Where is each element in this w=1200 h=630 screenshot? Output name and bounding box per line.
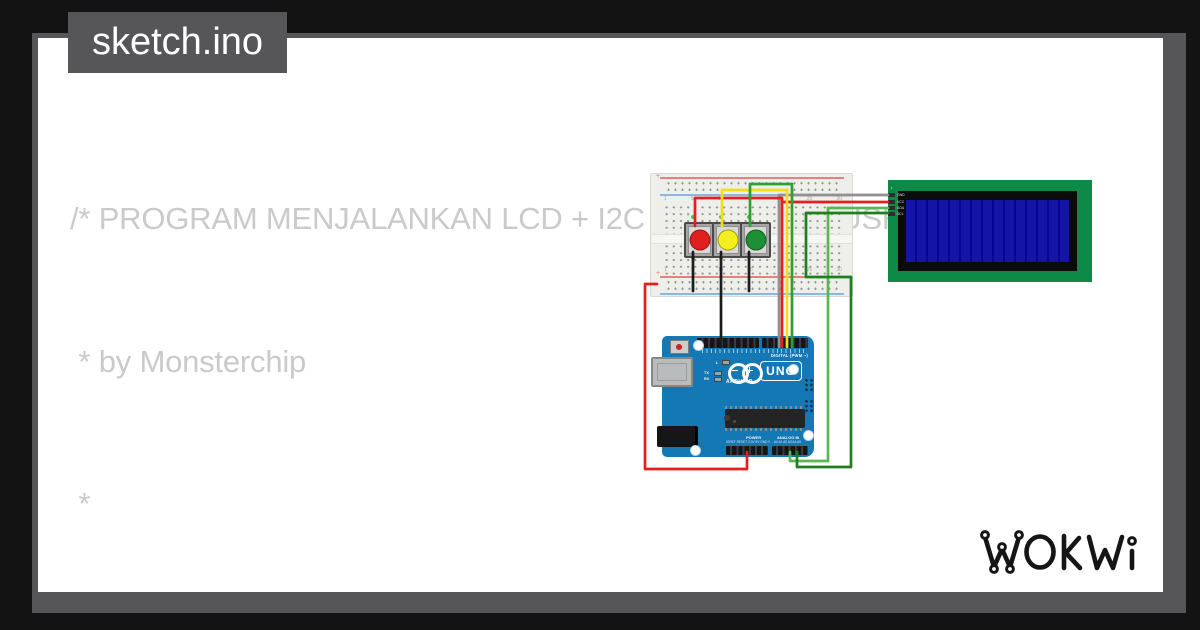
yellow-button-cap (717, 230, 738, 251)
logo-plus (749, 367, 751, 373)
code-line: * (70, 480, 1033, 528)
icsp-header (804, 399, 814, 413)
social-preview-card: sketch.ino /* PROGRAM MENJALANKAN LCD + … (0, 0, 1200, 630)
scl-pad (888, 212, 895, 216)
vcc-pin-label: VCC (897, 200, 904, 204)
code-line: * by Monsterchip (70, 338, 1033, 386)
atmega-chip (725, 409, 805, 428)
digital-header-right (762, 338, 808, 348)
rx-label: RX (704, 377, 709, 381)
sda-pin-label: SDA (897, 206, 904, 210)
power-header (726, 446, 768, 455)
contact-dot (691, 215, 695, 219)
lcd-i2c-module: 1 GND VCC SDA SCL (888, 180, 1092, 282)
pushbutton-red (684, 222, 715, 258)
green-button-cap (745, 230, 766, 251)
usb-connector (651, 357, 693, 387)
logo-i-dot (1129, 538, 1136, 545)
rail-holes (665, 279, 841, 292)
mounting-hole (690, 445, 701, 456)
tx-led (714, 371, 722, 376)
scl-pin-label: SCL (897, 212, 904, 216)
gnd-pin-label: GND (897, 193, 905, 197)
pin1-label: 1 (891, 186, 893, 190)
column-numbers: 151015202530 (664, 196, 842, 202)
vcc-pad (888, 200, 895, 204)
led-l (722, 360, 730, 365)
uno-model-label: UNO (760, 361, 802, 381)
logo-letter-k (1064, 536, 1080, 568)
rail-line-blue (660, 293, 844, 295)
rail-holes (665, 180, 841, 193)
chip-legs (725, 428, 805, 431)
lcd-screen (906, 200, 1069, 262)
red-button-cap (689, 230, 710, 251)
logo-minus (732, 370, 738, 372)
tx-label: TX (704, 371, 709, 375)
reset-button (670, 340, 689, 354)
logo-node (991, 566, 998, 573)
rail-line-red (660, 177, 844, 179)
sketch-filename: sketch.ino (92, 21, 263, 63)
power-jack (657, 426, 698, 447)
logo-node (999, 544, 1006, 551)
icsp-header (804, 378, 814, 392)
sda-pad (888, 206, 895, 210)
gnd-pad (888, 193, 895, 197)
logo-letter-w2 (1089, 537, 1122, 568)
mounting-hole (693, 340, 704, 351)
logo-node (1016, 532, 1023, 539)
wokwi-logo (976, 524, 1148, 576)
column-numbers: 151015202530 (664, 267, 842, 273)
code-line: * credit: (70, 623, 1033, 630)
pushbutton-yellow (712, 222, 743, 258)
sketch-filename-badge: sketch.ino (68, 12, 287, 73)
logo-letter-o (1027, 537, 1054, 568)
logo-node (1007, 566, 1014, 573)
arduino-brand-label: ARDUINO (726, 379, 753, 385)
rx-led (714, 377, 722, 382)
analog-header (772, 446, 808, 455)
pushbutton-green (740, 222, 771, 258)
contact-dot (719, 215, 723, 219)
led-l-label: L (716, 360, 718, 365)
logo-letter-w1 (985, 537, 1019, 567)
digital-pwm-label: DIGITAL (PWM ~) (718, 353, 808, 358)
on-label: ON (828, 369, 834, 374)
rail-line-red (660, 276, 844, 278)
on-led (820, 368, 826, 374)
contact-dot (747, 215, 751, 219)
analog-pin-labels: A0 A1 A2 A3 A4 A5 (774, 440, 808, 444)
logo-node (982, 532, 989, 539)
arduino-uno-board: DIGITAL (PWM ~) L TX RX UNO ON ARDUINO P… (662, 336, 814, 457)
digital-header-left (697, 338, 759, 348)
power-pin-labels: IOREF RESET 3.3V 5V GND GND VIN (726, 440, 770, 444)
